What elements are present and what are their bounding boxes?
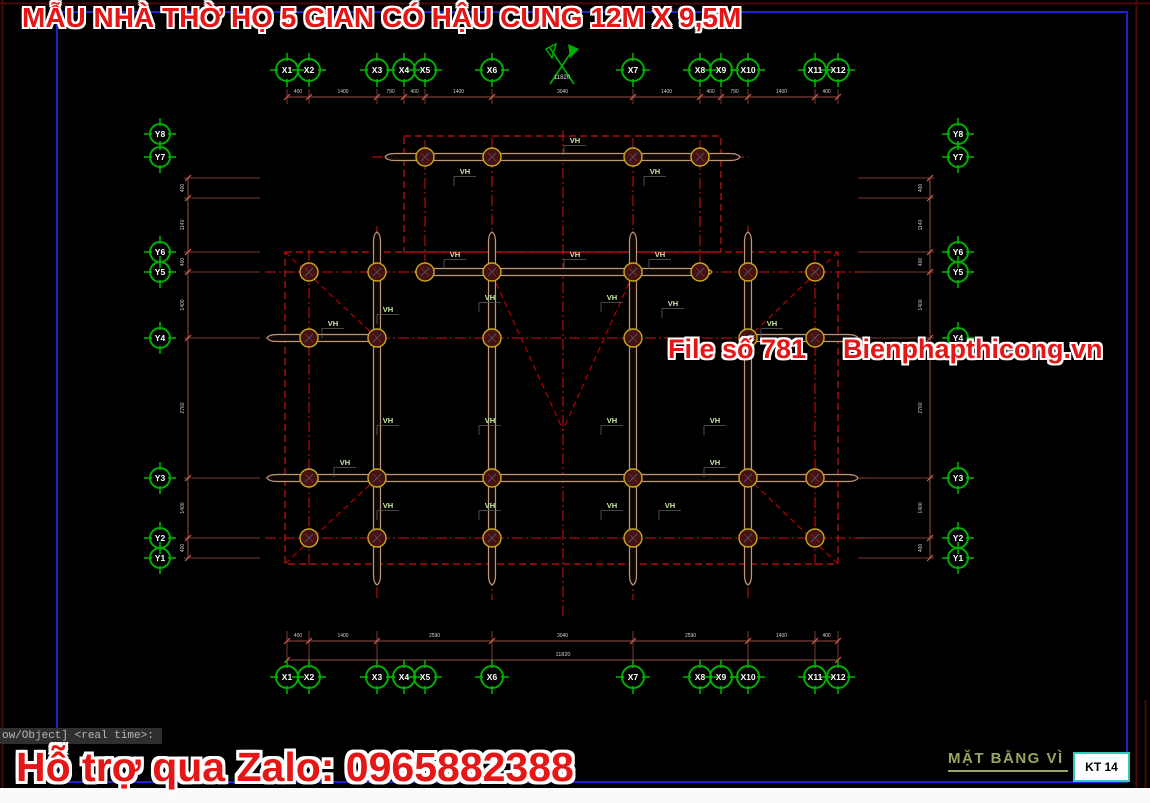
- svg-text:790: 790: [386, 89, 395, 95]
- svg-text:400: 400: [294, 633, 303, 639]
- svg-text:2590: 2590: [685, 633, 696, 639]
- svg-text:VH: VH: [340, 458, 350, 467]
- svg-text:VH: VH: [607, 501, 617, 510]
- svg-text:X10: X10: [740, 65, 755, 75]
- svg-text:400: 400: [918, 184, 924, 193]
- column-circle: [739, 263, 757, 281]
- svg-text:400: 400: [294, 89, 303, 95]
- svg-text:X11: X11: [808, 65, 823, 75]
- vh-truss-label: VH: [454, 167, 476, 186]
- svg-text:X11: X11: [808, 672, 823, 682]
- svg-text:VH: VH: [655, 250, 665, 259]
- axis-bubble-x12: X12: [821, 53, 855, 87]
- column-circle: [806, 329, 824, 347]
- column-circle: [300, 529, 318, 547]
- svg-text:2760: 2760: [180, 402, 186, 413]
- svg-text:Y2: Y2: [155, 533, 166, 543]
- vh-truss-label: VH: [601, 416, 623, 435]
- svg-text:X1: X1: [282, 65, 293, 75]
- axis-bubble-y5: Y5: [942, 256, 974, 288]
- vh-truss-label: VH: [601, 501, 623, 520]
- svg-text:VH: VH: [450, 250, 460, 259]
- vh-truss-label: VH: [564, 136, 586, 155]
- grid-centerlines: [265, 130, 875, 618]
- command-line-input[interactable]: ow/Object] <real time>:: [0, 728, 162, 744]
- cad-drawing-canvas[interactable]: VHVHVHVHVHVHVHVHVHVHVHVHVHVHVHVHVHVHVHVH…: [0, 0, 1150, 788]
- svg-text:Y8: Y8: [155, 129, 166, 139]
- column-circle: [691, 263, 709, 281]
- svg-text:VH: VH: [710, 416, 720, 425]
- svg-text:VH: VH: [668, 299, 678, 308]
- column-circle: [483, 148, 501, 166]
- svg-text:VH: VH: [328, 319, 338, 328]
- column-circle: [624, 329, 642, 347]
- axis-bubble-x5: X5: [408, 53, 442, 87]
- svg-text:400: 400: [822, 633, 831, 639]
- svg-text:VH: VH: [570, 250, 580, 259]
- svg-text:Y7: Y7: [953, 152, 964, 162]
- svg-text:X3: X3: [372, 672, 383, 682]
- svg-text:VH: VH: [383, 416, 393, 425]
- column-circle: [483, 469, 501, 487]
- north-arrow-icon: 11820: [546, 44, 579, 84]
- svg-text:X5: X5: [420, 65, 431, 75]
- svg-text:X7: X7: [628, 65, 639, 75]
- svg-text:Y6: Y6: [953, 247, 964, 257]
- svg-text:11820: 11820: [556, 652, 571, 658]
- svg-text:VH: VH: [460, 167, 470, 176]
- vh-truss-label: VH: [644, 167, 666, 186]
- svg-text:X3: X3: [372, 65, 383, 75]
- column-circle: [300, 329, 318, 347]
- column-circle: [691, 148, 709, 166]
- vh-truss-label: VH: [662, 299, 684, 318]
- column-circle: [483, 329, 501, 347]
- column-circle: [739, 469, 757, 487]
- svg-text:VH: VH: [383, 305, 393, 314]
- column-circle: [368, 263, 386, 281]
- svg-text:X4: X4: [399, 672, 410, 682]
- svg-text:Y1: Y1: [953, 553, 964, 563]
- svg-text:X9: X9: [716, 672, 727, 682]
- svg-text:Y3: Y3: [155, 473, 166, 483]
- svg-text:X10: X10: [740, 672, 755, 682]
- axis-bubble-x5: X5: [408, 660, 442, 694]
- svg-text:VH: VH: [710, 458, 720, 467]
- svg-text:1400: 1400: [180, 502, 186, 513]
- svg-text:3040: 3040: [557, 89, 568, 95]
- watermark-support-banner: Hỗ trợ qua Zalo: 0965882388: [16, 746, 574, 789]
- svg-text:Y5: Y5: [155, 267, 166, 277]
- svg-text:1400: 1400: [337, 89, 348, 95]
- column-circle: [739, 529, 757, 547]
- autocad-viewport: VHVHVHVHVHVHVHVHVHVHVHVHVHVHVHVHVHVHVHVH…: [0, 0, 1150, 803]
- svg-text:X9: X9: [716, 65, 727, 75]
- column-circle: [624, 148, 642, 166]
- axis-bubble-y7: Y7: [942, 141, 974, 173]
- beam: [267, 475, 858, 482]
- axis-bubble-y3: Y3: [942, 462, 974, 494]
- svg-text:Y5: Y5: [953, 267, 964, 277]
- sheet-number-box: KT 14: [1073, 752, 1130, 782]
- svg-text:VH: VH: [607, 416, 617, 425]
- svg-text:Y7: Y7: [155, 152, 166, 162]
- watermark-file-number: File số 781: [668, 335, 806, 363]
- axis-bubble-y3: Y3: [144, 462, 176, 494]
- svg-text:400: 400: [706, 89, 715, 95]
- svg-text:400: 400: [180, 184, 186, 193]
- column-circle: [300, 263, 318, 281]
- svg-text:X5: X5: [420, 672, 431, 682]
- bottom-white-strip: [0, 788, 1150, 803]
- vh-truss-label: VH: [601, 293, 623, 312]
- svg-text:VH: VH: [485, 501, 495, 510]
- svg-text:X7: X7: [628, 672, 639, 682]
- svg-text:X2: X2: [304, 65, 315, 75]
- beam: [385, 154, 740, 161]
- grid-bubbles: X1X1X2X2X3X3X4X4X5X5X6X6X7X7X8X8X9X9X10X…: [144, 53, 974, 694]
- column-circle: [624, 469, 642, 487]
- svg-text:X2: X2: [304, 672, 315, 682]
- svg-text:VH: VH: [485, 293, 495, 302]
- svg-text:1400: 1400: [180, 299, 186, 310]
- axis-bubble-x12: X12: [821, 660, 855, 694]
- watermark-website: Bienphapthicong.vn: [843, 335, 1103, 363]
- drawing-title: MẶT BẰNG VÌ: [948, 750, 1068, 772]
- svg-text:VH: VH: [767, 319, 777, 328]
- column-circle: [416, 148, 434, 166]
- axis-bubble-x2: X2: [292, 53, 326, 87]
- svg-text:Y1: Y1: [155, 553, 166, 563]
- svg-text:Y2: Y2: [953, 533, 964, 543]
- vh-truss-label: VH: [444, 250, 466, 269]
- svg-text:VH: VH: [665, 501, 675, 510]
- svg-text:Y3: Y3: [953, 473, 964, 483]
- beam: [415, 269, 712, 276]
- svg-text:X6: X6: [487, 672, 498, 682]
- svg-text:VH: VH: [650, 167, 660, 176]
- svg-text:X4: X4: [399, 65, 410, 75]
- vh-truss-label: VH: [659, 501, 681, 520]
- axis-bubble-x10: X10: [731, 660, 765, 694]
- truss-labels: VHVHVHVHVHVHVHVHVHVHVHVHVHVHVHVHVHVHVHVH…: [322, 136, 783, 520]
- axis-bubble-x10: X10: [731, 53, 765, 87]
- svg-text:Y8: Y8: [953, 129, 964, 139]
- svg-text:3040: 3040: [557, 633, 568, 639]
- axis-bubble-y5: Y5: [144, 256, 176, 288]
- column-circle: [624, 529, 642, 547]
- drawing-frame: [0, 0, 1150, 788]
- svg-text:1140: 1140: [180, 219, 186, 230]
- svg-text:400: 400: [918, 258, 924, 267]
- axis-bubble-y1: Y1: [144, 542, 176, 574]
- beam: [267, 335, 380, 342]
- svg-text:1400: 1400: [776, 633, 787, 639]
- svg-text:790: 790: [730, 89, 739, 95]
- svg-text:X6: X6: [487, 65, 498, 75]
- svg-text:1400: 1400: [661, 89, 672, 95]
- svg-text:Y6: Y6: [155, 247, 166, 257]
- svg-text:400: 400: [822, 89, 831, 95]
- svg-text:Y4: Y4: [155, 333, 166, 343]
- vh-truss-label: VH: [649, 250, 671, 269]
- svg-text:400: 400: [180, 544, 186, 553]
- column-circle: [368, 529, 386, 547]
- column-circle: [416, 263, 434, 281]
- svg-text:VH: VH: [607, 293, 617, 302]
- dimensions: 4001400790400140030401400400790140040040…: [180, 89, 934, 666]
- axis-bubble-x7: X7: [616, 53, 650, 87]
- column-circle: [624, 263, 642, 281]
- axis-bubble-x2: X2: [292, 660, 326, 694]
- vh-truss-label: VH: [704, 416, 726, 435]
- svg-text:VH: VH: [570, 136, 580, 145]
- watermark-title: MẪU NHÀ THỜ HỌ 5 GIAN CÓ HẬU CUNG 12M X …: [22, 3, 741, 32]
- svg-text:VH: VH: [383, 501, 393, 510]
- axis-bubble-y7: Y7: [144, 141, 176, 173]
- column-circle: [483, 263, 501, 281]
- svg-text:X1: X1: [282, 672, 293, 682]
- vh-truss-label: VH: [564, 250, 586, 269]
- axis-bubble-x7: X7: [616, 660, 650, 694]
- svg-text:2760: 2760: [918, 402, 924, 413]
- axis-bubble-x6: X6: [475, 660, 509, 694]
- sheet-number: KT 14: [1085, 760, 1118, 774]
- column-circle: [806, 263, 824, 281]
- column-circle: [483, 529, 501, 547]
- axis-bubble-x6: X6: [475, 53, 509, 87]
- svg-text:X12: X12: [830, 65, 845, 75]
- axis-bubble-y1: Y1: [942, 542, 974, 574]
- column-circle: [368, 469, 386, 487]
- svg-text:400: 400: [180, 258, 186, 267]
- svg-text:400: 400: [410, 89, 419, 95]
- svg-text:2590: 2590: [429, 633, 440, 639]
- svg-text:VH: VH: [485, 416, 495, 425]
- svg-text:1400: 1400: [918, 502, 924, 513]
- column-circle: [806, 529, 824, 547]
- svg-text:1400: 1400: [337, 633, 348, 639]
- column-circle: [368, 329, 386, 347]
- svg-text:11820: 11820: [554, 75, 571, 81]
- svg-text:400: 400: [918, 544, 924, 553]
- column-circle: [300, 469, 318, 487]
- column-circle: [806, 469, 824, 487]
- svg-text:1400: 1400: [918, 299, 924, 310]
- svg-text:1400: 1400: [776, 89, 787, 95]
- svg-text:X8: X8: [695, 672, 706, 682]
- axis-bubble-y4: Y4: [144, 322, 176, 354]
- svg-text:1140: 1140: [918, 219, 924, 230]
- svg-text:X8: X8: [695, 65, 706, 75]
- svg-text:X12: X12: [830, 672, 845, 682]
- svg-text:1400: 1400: [453, 89, 464, 95]
